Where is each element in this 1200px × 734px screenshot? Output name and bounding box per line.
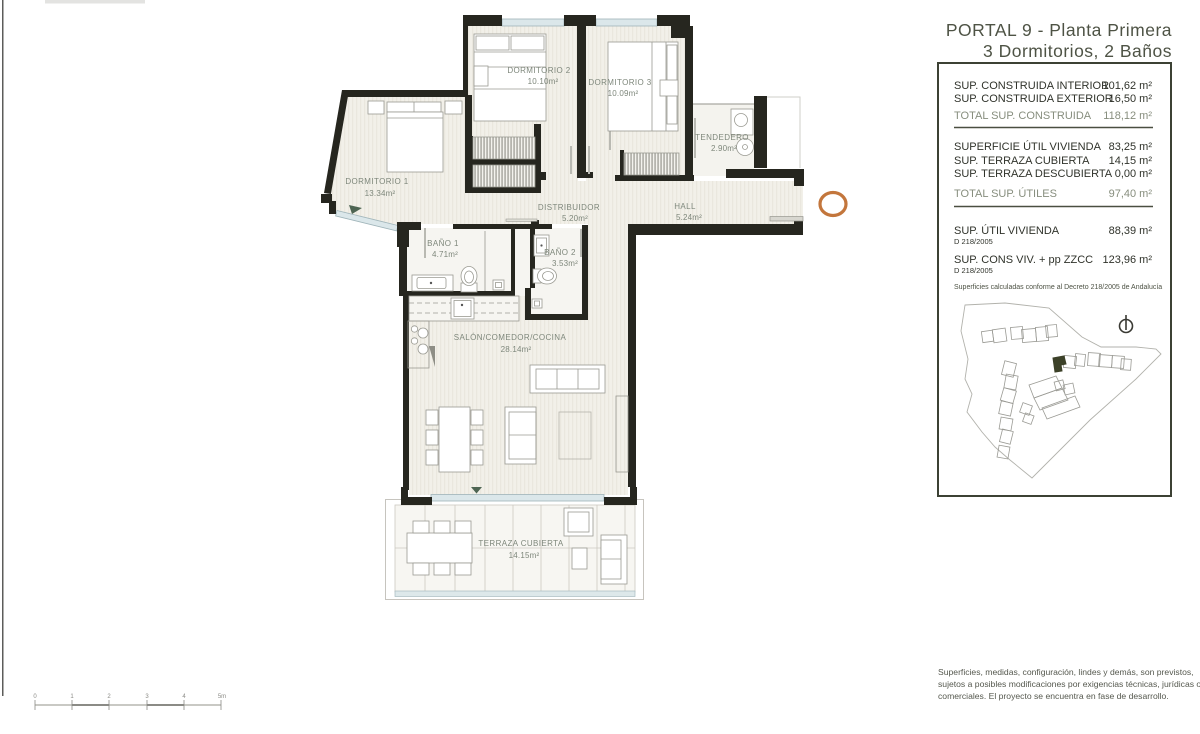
svg-text:5.24m²: 5.24m² <box>676 213 702 222</box>
svg-text:118,12 m²: 118,12 m² <box>1103 110 1152 122</box>
svg-text:83,25 m²: 83,25 m² <box>1109 141 1153 153</box>
svg-text:DORMITORIO 3: DORMITORIO 3 <box>588 78 651 87</box>
svg-text:13.34m²: 13.34m² <box>365 189 396 198</box>
svg-text:sujetos a posibles modificacio: sujetos a posibles modificaciones por ex… <box>938 679 1200 689</box>
svg-text:SUPERFICIE ÚTIL VIVIENDA: SUPERFICIE ÚTIL VIVIENDA <box>954 140 1102 153</box>
svg-text:TERRAZA CUBIERTA: TERRAZA CUBIERTA <box>478 539 563 548</box>
svg-text:10.09m²: 10.09m² <box>608 89 639 98</box>
svg-text:BAÑO 2: BAÑO 2 <box>544 248 576 257</box>
svg-text:28.14m²: 28.14m² <box>501 345 532 354</box>
svg-text:16,50 m²: 16,50 m² <box>1109 93 1153 105</box>
svg-text:10.10m²: 10.10m² <box>528 77 559 86</box>
svg-text:TENDEDERO: TENDEDERO <box>695 133 749 142</box>
svg-text:5m: 5m <box>218 694 226 700</box>
svg-text:D 218/2005: D 218/2005 <box>954 266 993 275</box>
svg-text:123,96 m²: 123,96 m² <box>1102 254 1152 266</box>
svg-text:SUP. CONSTRUIDA INTERIOR: SUP. CONSTRUIDA INTERIOR <box>954 80 1109 92</box>
svg-text:SALÓN/COMEDOR/COCINA: SALÓN/COMEDOR/COCINA <box>454 333 567 342</box>
svg-text:3 Dormitorios, 2 Baños: 3 Dormitorios, 2 Baños <box>983 41 1172 61</box>
svg-text:101,62 m²: 101,62 m² <box>1102 80 1152 92</box>
svg-text:D 218/2005: D 218/2005 <box>954 237 993 246</box>
svg-text:SUP. TERRAZA DESCUBIERTA: SUP. TERRAZA DESCUBIERTA <box>954 168 1113 180</box>
svg-text:PORTAL 9 - Planta Primera: PORTAL 9 - Planta Primera <box>946 20 1172 40</box>
svg-text:Superficies, medidas, configur: Superficies, medidas, configuración, lin… <box>938 667 1194 677</box>
svg-text:97,40 m²: 97,40 m² <box>1109 188 1153 200</box>
svg-text:TOTAL SUP. ÚTILES: TOTAL SUP. ÚTILES <box>954 187 1057 200</box>
svg-text:0,00 m²: 0,00 m² <box>1115 168 1153 180</box>
svg-text:BAÑO 1: BAÑO 1 <box>427 239 459 248</box>
svg-text:5.20m²: 5.20m² <box>562 214 588 223</box>
svg-text:SUP. CONS VIV. + pp ZZCC: SUP. CONS VIV. + pp ZZCC <box>954 254 1093 266</box>
svg-text:14.15m²: 14.15m² <box>509 551 540 560</box>
svg-text:SUP. CONSTRUIDA EXTERIOR: SUP. CONSTRUIDA EXTERIOR <box>954 93 1113 105</box>
svg-text:4.71m²: 4.71m² <box>432 250 458 259</box>
svg-text:88,39 m²: 88,39 m² <box>1109 225 1153 237</box>
svg-text:14,15 m²: 14,15 m² <box>1109 155 1153 167</box>
svg-text:DORMITORIO 2: DORMITORIO 2 <box>507 66 570 75</box>
svg-text:SUP. TERRAZA CUBIERTA: SUP. TERRAZA CUBIERTA <box>954 155 1090 167</box>
svg-text:2.90m²: 2.90m² <box>711 144 737 153</box>
svg-text:DISTRIBUIDOR: DISTRIBUIDOR <box>538 203 600 212</box>
svg-text:HALL: HALL <box>674 202 696 211</box>
svg-text:3.53m²: 3.53m² <box>552 259 578 268</box>
svg-text:DORMITORIO 1: DORMITORIO 1 <box>345 177 408 186</box>
svg-text:comerciales. El proyecto se en: comerciales. El proyecto se encuentra en… <box>938 691 1169 701</box>
svg-text:TOTAL SUP. CONSTRUIDA: TOTAL SUP. CONSTRUIDA <box>954 110 1092 122</box>
svg-text:Superficies calculadas conform: Superficies calculadas conforme al Decre… <box>954 284 1162 291</box>
svg-text:SUP. ÚTIL VIVIENDA: SUP. ÚTIL VIVIENDA <box>954 224 1060 237</box>
